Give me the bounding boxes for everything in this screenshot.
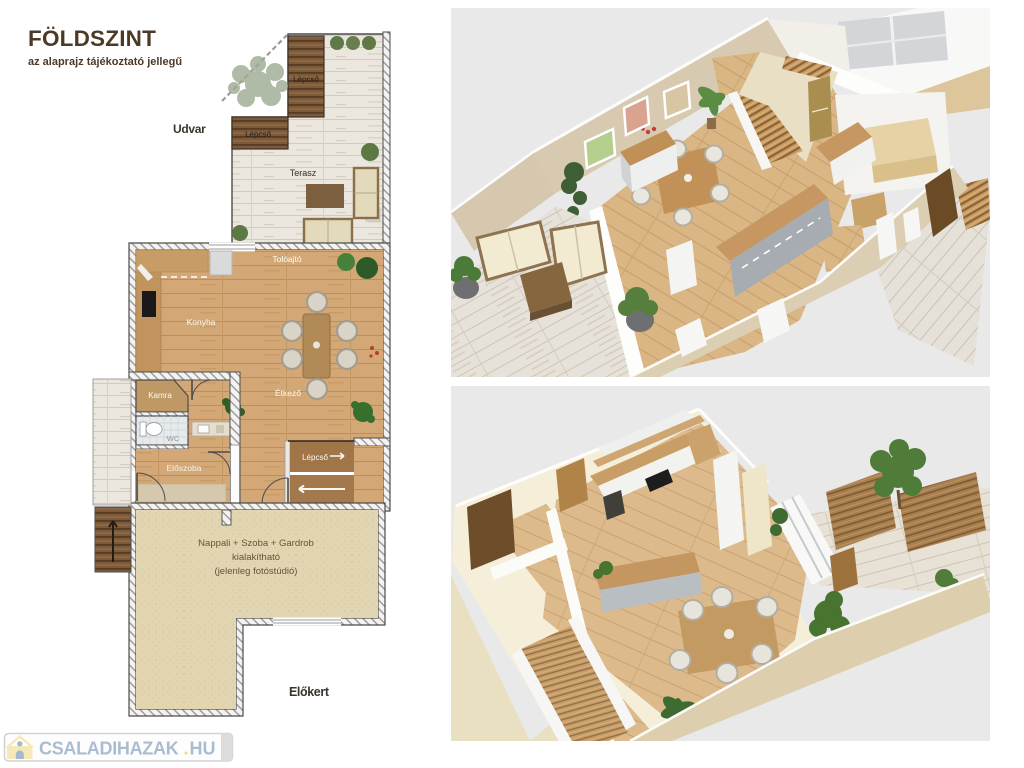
svg-text:(jelenleg fotóstúdió): (jelenleg fotóstúdió) xyxy=(215,566,298,577)
svg-text:.: . xyxy=(184,739,189,759)
svg-text:Lépcső: Lépcső xyxy=(293,75,319,84)
svg-text:Tolóajtó: Tolóajtó xyxy=(272,254,302,264)
svg-text:kialakítható: kialakítható xyxy=(232,552,280,563)
svg-text:Kamra: Kamra xyxy=(148,391,172,400)
svg-text:HU: HU xyxy=(190,739,216,759)
svg-text:Konyha: Konyha xyxy=(187,317,216,327)
svg-text:az alaprajz tájékoztató jelleg: az alaprajz tájékoztató jellegű xyxy=(28,56,182,68)
svg-text:CSALADIHAZAK: CSALADIHAZAK xyxy=(39,739,179,759)
svg-text:FÖLDSZINT: FÖLDSZINT xyxy=(28,26,156,51)
svg-text:Udvar: Udvar xyxy=(173,122,206,136)
svg-text:Terasz: Terasz xyxy=(290,168,317,178)
svg-text:Lépcső: Lépcső xyxy=(245,130,271,139)
svg-text:Nappali + Szoba + Gardrob: Nappali + Szoba + Gardrob xyxy=(198,538,314,549)
svg-text:Lépcső: Lépcső xyxy=(302,453,328,462)
svg-text:Előkert: Előkert xyxy=(289,685,330,699)
svg-text:Étkező: Étkező xyxy=(275,388,301,398)
svg-text:WC: WC xyxy=(167,434,180,443)
svg-text:Előszoba: Előszoba xyxy=(167,463,202,473)
